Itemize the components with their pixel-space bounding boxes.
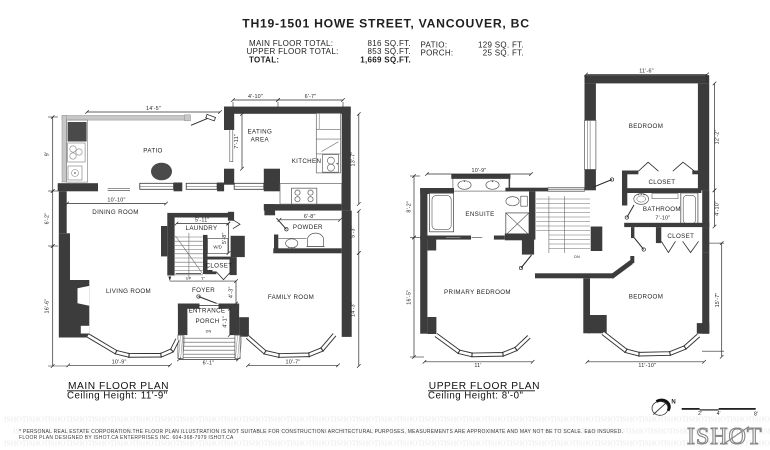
svg-text:ISHOT: ISHOT (48, 415, 71, 424)
svg-text:ISHOT: ISHOT (334, 439, 357, 448)
svg-text:1,669 SQ.FT.: 1,669 SQ.FT. (360, 55, 411, 64)
svg-text:ISHOT: ISHOT (202, 415, 225, 424)
svg-text:ISHOT: ISHOT (312, 415, 335, 424)
svg-text:ISHOT: ISHOT (554, 439, 577, 448)
svg-text:ISHOT: ISHOT (136, 415, 159, 424)
svg-text:7'-11": 7'-11" (234, 134, 240, 149)
svg-text:ISHOT: ISHOT (488, 439, 511, 448)
svg-text:DN: DN (206, 330, 212, 334)
svg-text:4': 4' (717, 411, 721, 417)
svg-text:ISHOT: ISHOT (598, 439, 621, 448)
svg-text:POWDER: POWDER (293, 224, 323, 231)
svg-text:13'-7": 13'-7" (351, 152, 357, 167)
svg-text:11'-6": 11'-6" (639, 68, 654, 74)
svg-text:7'-10": 7'-10" (655, 215, 670, 221)
svg-text:11'-10": 11'-10" (638, 363, 656, 369)
svg-text:4'-10": 4'-10" (248, 94, 263, 100)
svg-text:FAMILY ROOM: FAMILY ROOM (268, 294, 314, 301)
svg-text:ISHOT: ISHOT (334, 415, 357, 424)
svg-text:ISHOT: ISHOT (554, 415, 577, 424)
svg-text:ISHOT: ISHOT (576, 415, 599, 424)
svg-text:ISHOT: ISHOT (466, 415, 489, 424)
svg-text:ISHOT: ISHOT (224, 415, 247, 424)
svg-text:PORCH: PORCH (195, 318, 219, 325)
svg-text:ISHOT: ISHOT (92, 415, 115, 424)
svg-text:ISHOT: ISHOT (532, 415, 555, 424)
svg-text:ISHOT: ISHOT (422, 439, 445, 448)
svg-text:FLOOR PLAN DESIGNED BY ISHOT.C: FLOOR PLAN DESIGNED BY ISHOT.CA ENTERPRI… (19, 435, 234, 441)
svg-text:6'-1": 6'-1" (203, 361, 215, 367)
svg-text:BATHROOM: BATHROOM (643, 206, 681, 213)
svg-text:ISHOT: ISHOT (687, 424, 762, 450)
svg-text:ISHOT: ISHOT (598, 415, 621, 424)
svg-text:4'-3": 4'-3" (229, 286, 235, 298)
svg-text:10'-9": 10'-9" (472, 168, 487, 174)
svg-text:ISHOT: ISHOT (488, 415, 511, 424)
svg-text:ISHOT: ISHOT (290, 415, 313, 424)
svg-text:ISHOT: ISHOT (510, 415, 533, 424)
svg-text:4'-1": 4'-1" (222, 316, 228, 328)
svg-text:ISHOT: ISHOT (642, 439, 665, 448)
svg-text:ISHOT: ISHOT (400, 415, 423, 424)
svg-text:BEDROOM: BEDROOM (629, 293, 663, 300)
svg-text:ISHOT: ISHOT (444, 415, 467, 424)
svg-text:UP: UP (186, 275, 192, 280)
svg-text:ISHOT: ISHOT (356, 439, 379, 448)
svg-text:5'-11": 5'-11" (195, 218, 210, 224)
svg-text:CLOSET: CLOSET (667, 233, 694, 240)
svg-text:ISHOT: ISHOT (378, 415, 401, 424)
svg-text:ISHOT: ISHOT (268, 439, 291, 448)
svg-text:CLOSET: CLOSET (648, 179, 675, 186)
svg-text:ISHOT: ISHOT (466, 439, 489, 448)
svg-text:KITCHEN: KITCHEN (292, 158, 322, 165)
svg-text:12'-2": 12'-2" (715, 129, 721, 144)
svg-text:ISHOT: ISHOT (532, 439, 555, 448)
svg-text:6'-7": 6'-7" (305, 94, 317, 100)
svg-text:ISHOT: ISHOT (642, 415, 665, 424)
svg-text:ISHOT: ISHOT (180, 415, 203, 424)
svg-text:5'-8": 5'-8" (222, 232, 228, 244)
svg-text:ISHOT: ISHOT (629, 427, 652, 436)
svg-text:AREA: AREA (251, 137, 270, 144)
svg-text:9': 9' (45, 152, 51, 156)
svg-text:DN: DN (574, 255, 580, 259)
svg-text:ISHOT: ISHOT (664, 415, 687, 424)
svg-text:10'-9": 10'-9" (112, 359, 127, 365)
svg-text:ISHOT: ISHOT (26, 415, 49, 424)
svg-text:Ceiling Height: 8'-0": Ceiling Height: 8'-0" (428, 391, 524, 402)
svg-text:ISHOT: ISHOT (356, 415, 379, 424)
svg-text:10'-10": 10'-10" (107, 198, 125, 204)
svg-text:ISHOT: ISHOT (400, 439, 423, 448)
svg-text:ISHOT: ISHOT (268, 415, 291, 424)
svg-text:8'-2": 8'-2" (407, 201, 413, 213)
svg-text:PRIMARY BEDROOM: PRIMARY BEDROOM (444, 289, 511, 296)
svg-text:ISHOT: ISHOT (158, 415, 181, 424)
svg-text:ISHOT: ISHOT (620, 415, 643, 424)
svg-text:LIVING ROOM: LIVING ROOM (106, 288, 151, 295)
svg-text:16'-5": 16'-5" (407, 290, 413, 305)
svg-text:PORCH:: PORCH: (421, 49, 454, 58)
svg-text:11': 11' (474, 363, 481, 369)
svg-text:ENSUITE: ENSUITE (465, 211, 494, 218)
svg-text:ISHOT: ISHOT (651, 427, 674, 436)
svg-text:ISHOT: ISHOT (312, 439, 335, 448)
svg-text:5'-3": 5'-3" (351, 226, 357, 238)
svg-text:ISHOT: ISHOT (510, 439, 533, 448)
svg-text:N: N (671, 400, 675, 406)
svg-text:ENTRANCE: ENTRANCE (189, 308, 226, 315)
svg-text:TOTAL:: TOTAL: (249, 55, 279, 64)
svg-text:2': 2' (698, 411, 702, 417)
svg-text:ISHOT: ISHOT (664, 439, 687, 448)
svg-text:FOYER: FOYER (192, 287, 215, 294)
svg-text:ISHOT: ISHOT (378, 439, 401, 448)
svg-text:W/D: W/D (213, 244, 222, 249)
svg-text:6'-8": 6'-8" (304, 214, 316, 220)
svg-text:ISHOT: ISHOT (422, 415, 445, 424)
svg-text:8': 8' (754, 411, 758, 417)
svg-text:LAUNDRY: LAUNDRY (186, 225, 218, 232)
svg-text:ISHOT: ISHOT (730, 415, 753, 424)
svg-text:ISHOT: ISHOT (246, 439, 269, 448)
svg-text:ISHOT: ISHOT (761, 427, 770, 436)
svg-text:6'-2": 6'-2" (45, 213, 51, 225)
svg-text:EATING: EATING (247, 128, 272, 135)
svg-text:10'-7": 10'-7" (286, 359, 301, 365)
svg-text:ISHOT: ISHOT (290, 439, 313, 448)
svg-text:ISHOT: ISHOT (620, 439, 643, 448)
svg-text:15'-7": 15'-7" (715, 292, 721, 307)
svg-text:ISHOT: ISHOT (4, 415, 27, 424)
svg-text:CLOSET: CLOSET (206, 262, 233, 269)
svg-text:25 SQ. FT.: 25 SQ. FT. (483, 49, 524, 58)
svg-text:ISHOT: ISHOT (576, 439, 599, 448)
svg-text:14'-5": 14'-5" (146, 106, 161, 112)
svg-text:16'-6": 16'-6" (45, 299, 51, 314)
svg-text:BEDROOM: BEDROOM (629, 123, 663, 130)
svg-text:ISHOT: ISHOT (114, 415, 137, 424)
svg-text:DINING ROOM: DINING ROOM (92, 209, 138, 216)
svg-text:14'-3": 14'-3" (351, 302, 357, 317)
svg-text:ISHOT: ISHOT (444, 439, 467, 448)
svg-text:7': 7' (201, 276, 205, 281)
svg-text:4'-10": 4'-10" (715, 201, 721, 216)
svg-text:PATIO: PATIO (143, 148, 162, 155)
svg-text:TH19-1501 HOWE STREET, VANCOUV: TH19-1501 HOWE STREET, VANCOUVER, BC (242, 16, 530, 30)
svg-text:ISHOT: ISHOT (246, 415, 269, 424)
svg-text:Ceiling Height: 11'-9": Ceiling Height: 11'-9" (67, 391, 168, 402)
svg-text:ISHOT: ISHOT (70, 415, 93, 424)
